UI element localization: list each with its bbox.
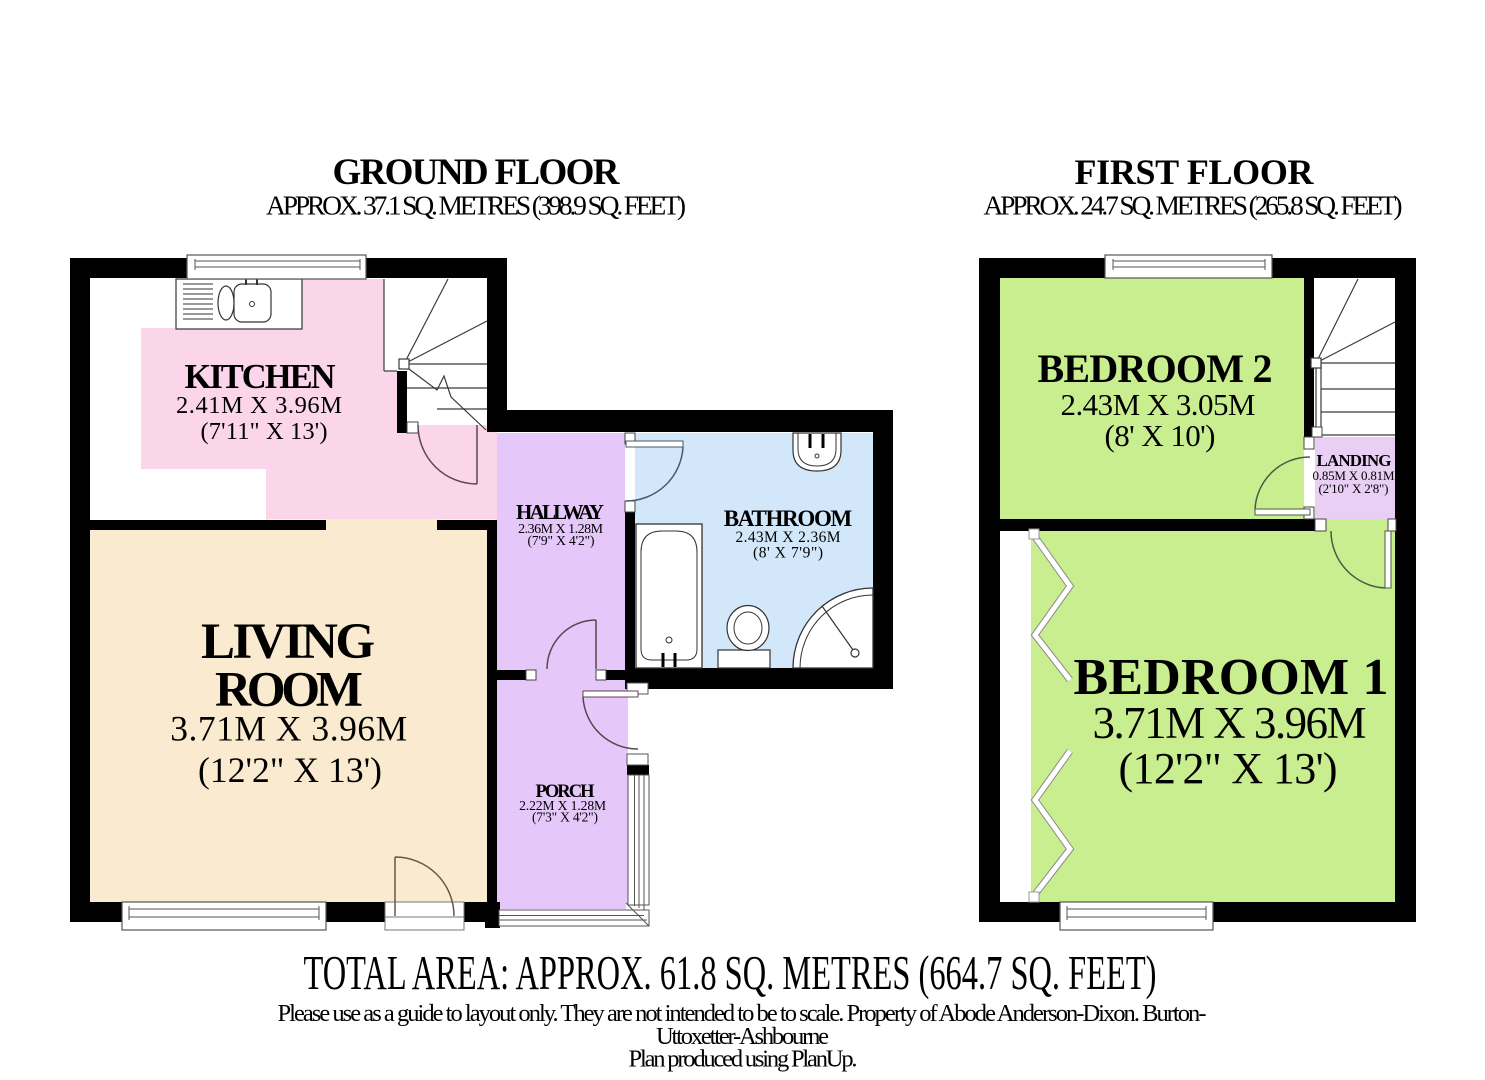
svg-text:BEDROOM 2: BEDROOM 2 bbox=[1038, 346, 1273, 391]
svg-text:(7'9" X 4'2"): (7'9" X 4'2") bbox=[528, 533, 595, 548]
svg-text:KITCHEN: KITCHEN bbox=[185, 358, 336, 396]
svg-text:2.43M X 2.36M: 2.43M X 2.36M bbox=[736, 529, 841, 546]
svg-text:(12'2" X 13'): (12'2" X 13') bbox=[198, 750, 382, 790]
svg-text:2.43M X 3.05M: 2.43M X 3.05M bbox=[1061, 387, 1256, 422]
svg-text:TOTAL AREA: APPROX. 61.8 SQ. M: TOTAL AREA: APPROX. 61.8 SQ. METRES (664… bbox=[304, 945, 1157, 1000]
svg-text:3.71M X 3.96M: 3.71M X 3.96M bbox=[1093, 698, 1367, 748]
svg-text:Plan produced using PlanUp.: Plan produced using PlanUp. bbox=[629, 1046, 858, 1073]
svg-text:HALLWAY: HALLWAY bbox=[516, 500, 604, 524]
svg-text:(7'11" X 13'): (7'11" X 13') bbox=[201, 418, 328, 445]
svg-text:2.41M X 3.96M: 2.41M X 3.96M bbox=[176, 392, 342, 419]
svg-text:(2'10" X 2'8"): (2'10" X 2'8") bbox=[1319, 481, 1389, 496]
svg-text:APPROX. 24.7 SQ. METRES (265.8: APPROX. 24.7 SQ. METRES (265.8 SQ. FEET) bbox=[984, 190, 1403, 221]
svg-text:BATHROOM: BATHROOM bbox=[724, 506, 853, 531]
svg-text:(8' X 7'9"): (8' X 7'9") bbox=[753, 545, 823, 562]
svg-text:(7'3" X 4'2"): (7'3" X 4'2") bbox=[532, 810, 598, 825]
svg-text:(12'2" X 13'): (12'2" X 13') bbox=[1119, 744, 1338, 793]
svg-text:FIRST FLOOR: FIRST FLOOR bbox=[1075, 152, 1315, 192]
svg-text:(8' X 10'): (8' X 10') bbox=[1105, 418, 1216, 453]
svg-text:3.71M X 3.96M: 3.71M X 3.96M bbox=[170, 709, 407, 749]
svg-text:APPROX. 37.1 SQ. METRES (398.9: APPROX. 37.1 SQ. METRES (398.9 SQ. FEET) bbox=[266, 190, 686, 221]
svg-text:GROUND FLOOR: GROUND FLOOR bbox=[333, 152, 621, 193]
